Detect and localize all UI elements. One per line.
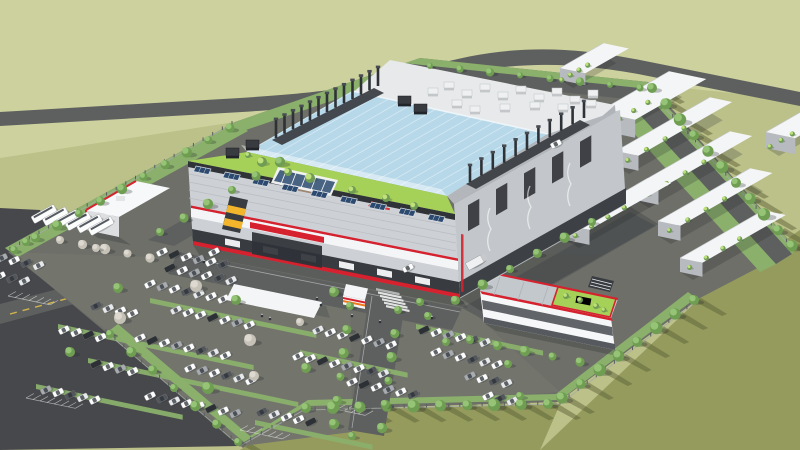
depot-roof-unit [116,196,125,201]
architectural-rendering: Aerial 3D architectural rendering of an … [0,0,800,450]
facade-red-accent [461,234,464,292]
